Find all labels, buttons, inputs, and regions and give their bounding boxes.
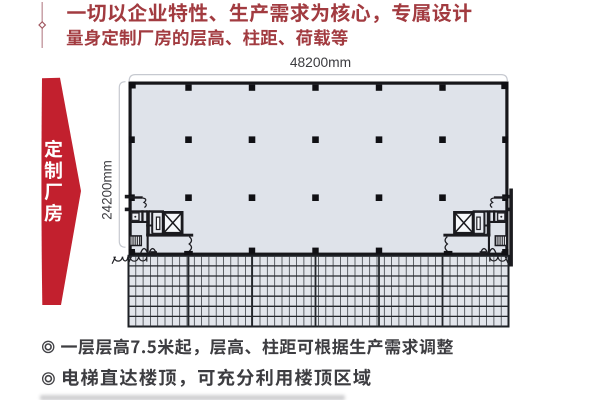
svg-text:24200mm: 24200mm <box>99 160 114 220</box>
svg-text:48200mm: 48200mm <box>290 55 351 70</box>
